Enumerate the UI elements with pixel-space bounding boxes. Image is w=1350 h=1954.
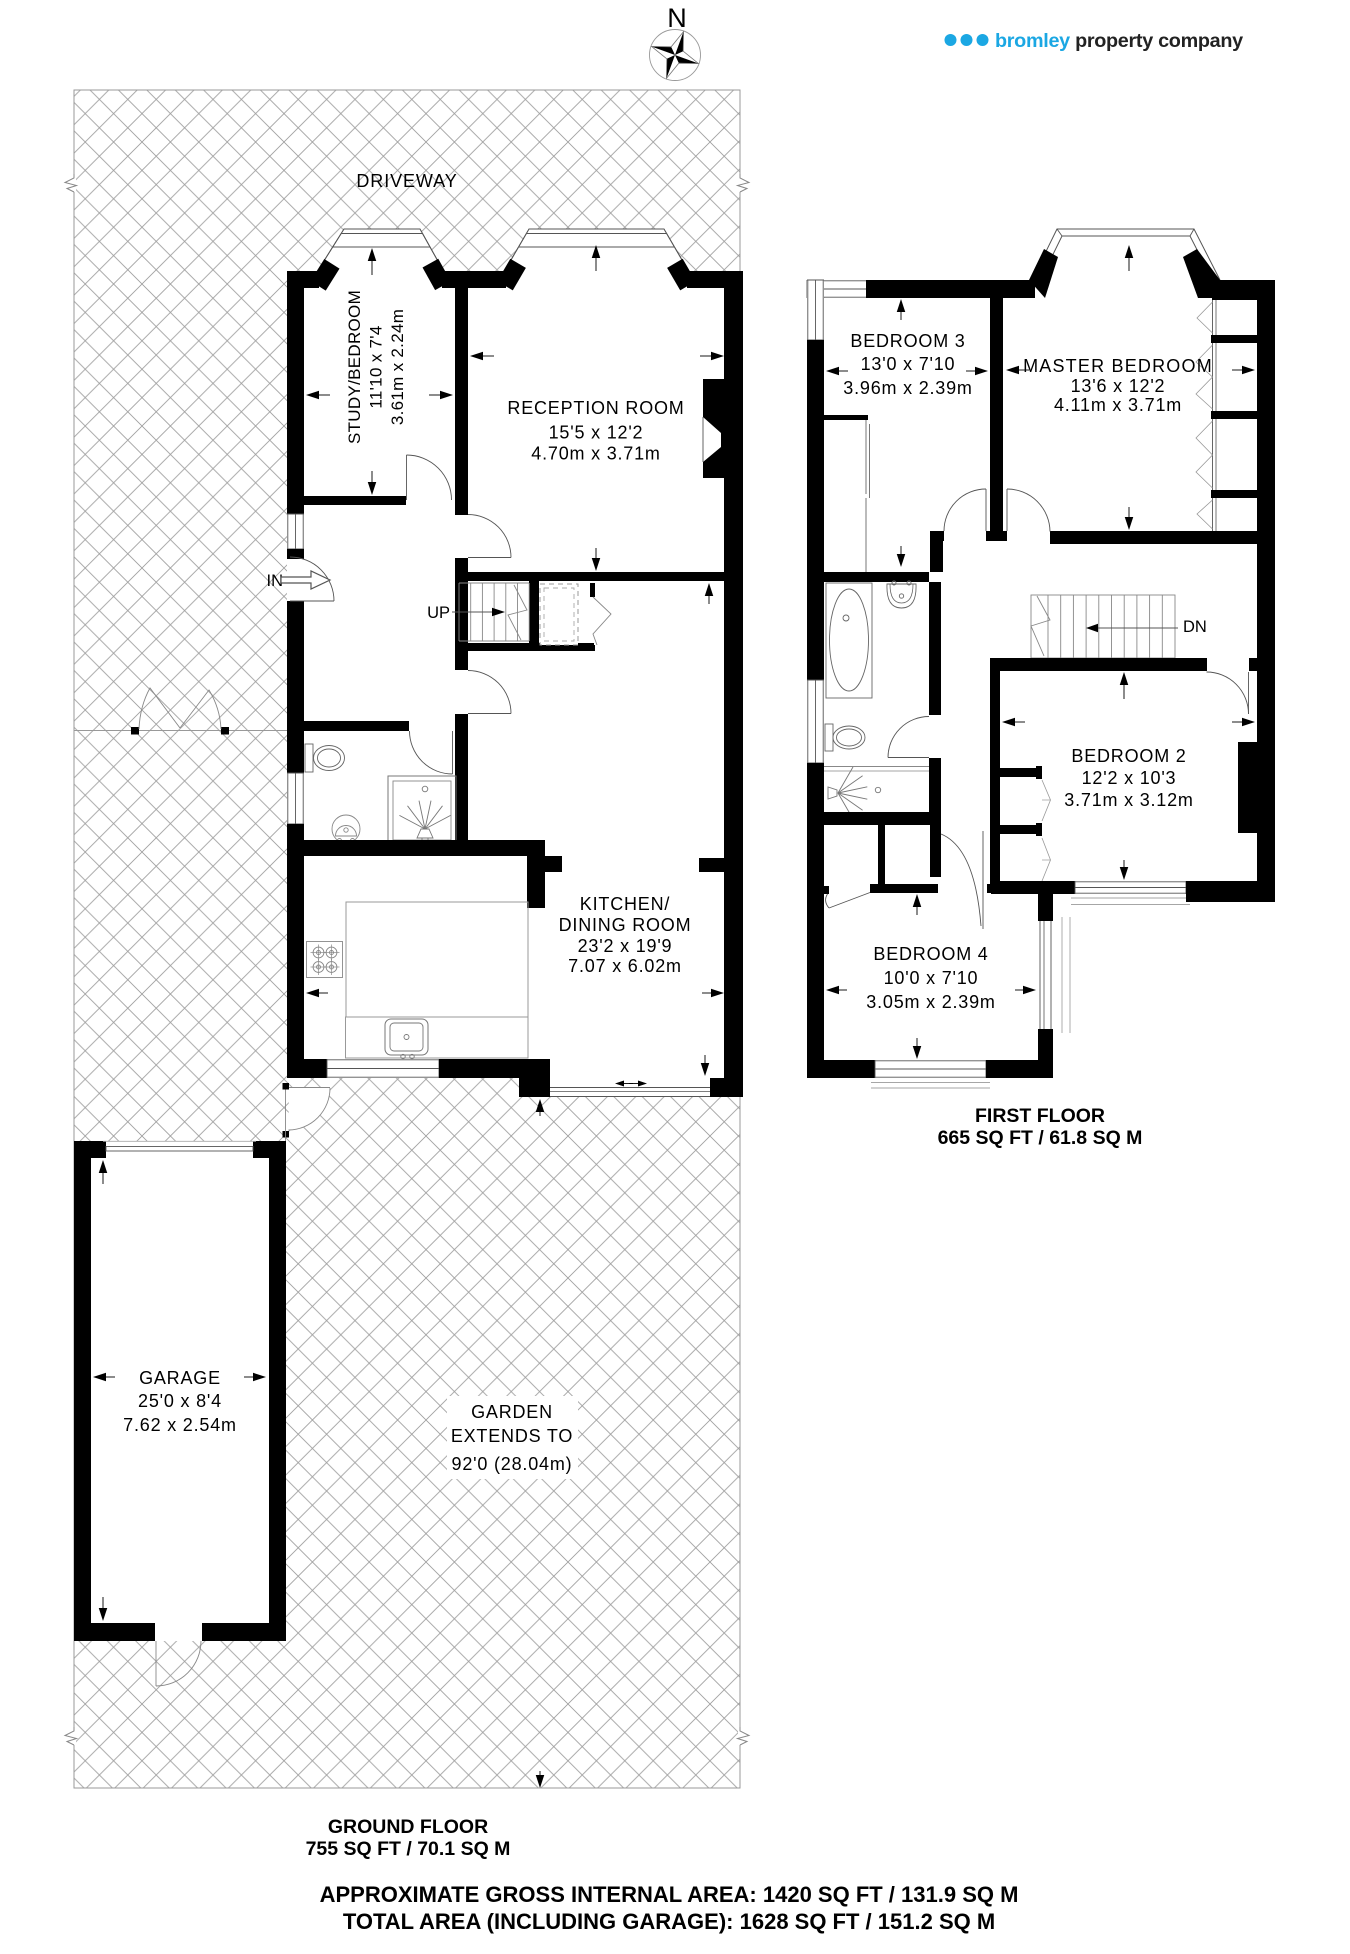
svg-text:3.61m x 2.24m: 3.61m x 2.24m — [388, 309, 407, 425]
svg-text:15'5 x 12'2: 15'5 x 12'2 — [549, 423, 644, 443]
svg-text:DRIVEWAY: DRIVEWAY — [356, 171, 457, 191]
svg-text:13'6 x 12'2: 13'6 x 12'2 — [1071, 376, 1166, 396]
svg-text:UP: UP — [427, 604, 450, 622]
svg-text:bromley property company: bromley property company — [995, 30, 1243, 52]
svg-text:12'2 x 10'3: 12'2 x 10'3 — [1082, 768, 1177, 788]
svg-text:GARDEN: GARDEN — [471, 1402, 553, 1422]
svg-text:665 SQ FT / 61.8 SQ M: 665 SQ FT / 61.8 SQ M — [938, 1127, 1143, 1149]
svg-text:3.05m x 2.39m: 3.05m x 2.39m — [866, 992, 995, 1012]
svg-text:DN: DN — [1183, 618, 1207, 636]
svg-text:755 SQ FT / 70.1 SQ M: 755 SQ FT / 70.1 SQ M — [306, 1838, 511, 1860]
svg-text:MASTER BEDROOM: MASTER BEDROOM — [1023, 356, 1213, 376]
svg-text:11'10 x 7'4: 11'10 x 7'4 — [367, 325, 386, 408]
svg-text:STUDY/BEDROOM: STUDY/BEDROOM — [345, 290, 364, 444]
svg-text:FIRST FLOOR: FIRST FLOOR — [975, 1105, 1105, 1127]
svg-text:DINING ROOM: DINING ROOM — [559, 915, 692, 935]
svg-text:TOTAL AREA (INCLUDING GARAGE):: TOTAL AREA (INCLUDING GARAGE): 1628 SQ F… — [343, 1909, 995, 1934]
svg-text:25'0 x 8'4: 25'0 x 8'4 — [138, 1391, 222, 1411]
svg-text:BEDROOM 4: BEDROOM 4 — [873, 944, 988, 964]
svg-text:3.71m x 3.12m: 3.71m x 3.12m — [1064, 790, 1193, 810]
svg-text:BEDROOM 2: BEDROOM 2 — [1071, 746, 1186, 766]
svg-text:N: N — [667, 3, 687, 33]
svg-text:10'0 x 7'10: 10'0 x 7'10 — [884, 968, 979, 988]
svg-text:3.96m x 2.39m: 3.96m x 2.39m — [843, 378, 972, 398]
svg-text:KITCHEN/: KITCHEN/ — [580, 894, 670, 914]
svg-text:4.70m x 3.71m: 4.70m x 3.71m — [531, 444, 660, 464]
svg-text:7.07 x 6.02m: 7.07 x 6.02m — [568, 956, 682, 976]
svg-text:APPROXIMATE GROSS INTERNAL ARE: APPROXIMATE GROSS INTERNAL AREA: 1420 SQ… — [320, 1882, 1019, 1907]
svg-text:GARAGE: GARAGE — [139, 1368, 221, 1388]
svg-text:13'0 x 7'10: 13'0 x 7'10 — [861, 354, 956, 374]
svg-text:92'0 (28.04m): 92'0 (28.04m) — [452, 1454, 573, 1474]
svg-text:23'2 x 19'9: 23'2 x 19'9 — [578, 936, 673, 956]
svg-text:GROUND FLOOR: GROUND FLOOR — [328, 1816, 488, 1838]
svg-text:4.11m x 3.71m: 4.11m x 3.71m — [1054, 395, 1182, 415]
svg-text:7.62 x 2.54m: 7.62 x 2.54m — [123, 1415, 237, 1435]
svg-text:EXTENDS TO: EXTENDS TO — [451, 1426, 573, 1446]
svg-text:RECEPTION ROOM: RECEPTION ROOM — [507, 398, 684, 418]
svg-text:BEDROOM 3: BEDROOM 3 — [850, 331, 965, 351]
